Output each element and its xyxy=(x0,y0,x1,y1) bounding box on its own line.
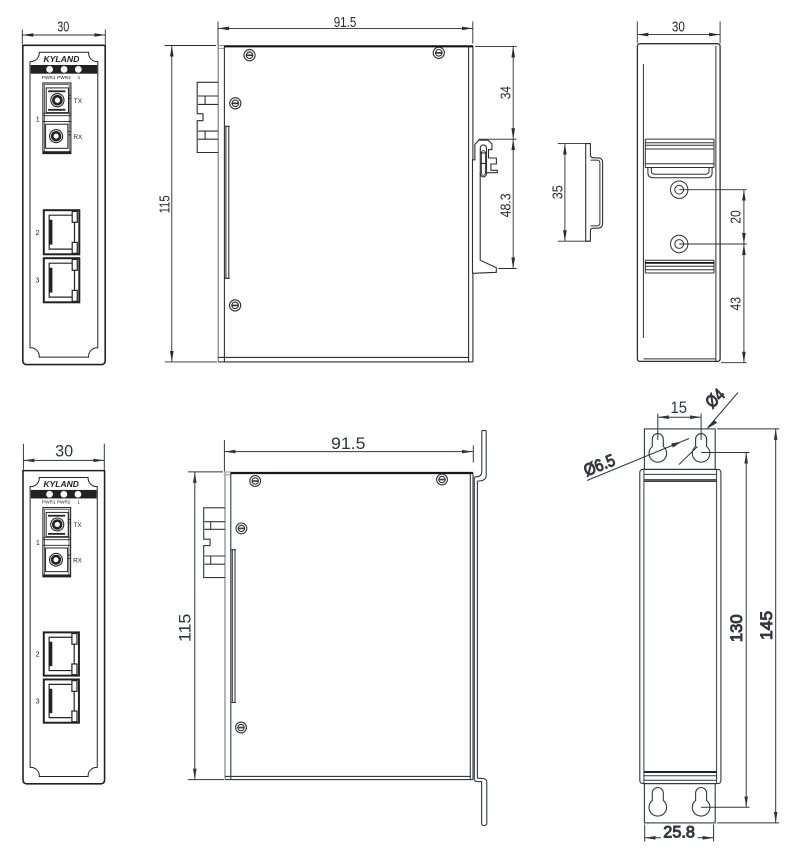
svg-text:1: 1 xyxy=(78,75,81,81)
svg-text:43: 43 xyxy=(729,297,745,311)
svg-text:PWR1 PWR2: PWR1 PWR2 xyxy=(42,75,71,81)
svg-text:KYLAND: KYLAND xyxy=(43,54,79,64)
svg-text:48.3: 48.3 xyxy=(498,193,514,217)
svg-text:3: 3 xyxy=(36,276,40,285)
svg-text:34: 34 xyxy=(498,86,514,99)
svg-text:TX: TX xyxy=(74,98,83,105)
svg-text:2: 2 xyxy=(36,228,40,237)
svg-text:35: 35 xyxy=(550,185,566,199)
svg-text:145: 145 xyxy=(757,611,776,640)
svg-text:91.5: 91.5 xyxy=(334,15,357,31)
svg-text:30: 30 xyxy=(55,441,73,460)
svg-text:25.8: 25.8 xyxy=(663,823,695,842)
svg-text:30: 30 xyxy=(57,20,69,36)
svg-text:15: 15 xyxy=(671,398,688,417)
svg-text:1: 1 xyxy=(36,114,40,123)
svg-text:115: 115 xyxy=(157,195,173,213)
svg-text:130: 130 xyxy=(727,614,746,642)
svg-text:30: 30 xyxy=(672,19,685,35)
svg-text:115: 115 xyxy=(176,614,195,643)
svg-text:91.5: 91.5 xyxy=(331,434,366,453)
svg-text:RX: RX xyxy=(73,134,83,141)
svg-text:20: 20 xyxy=(729,210,745,224)
